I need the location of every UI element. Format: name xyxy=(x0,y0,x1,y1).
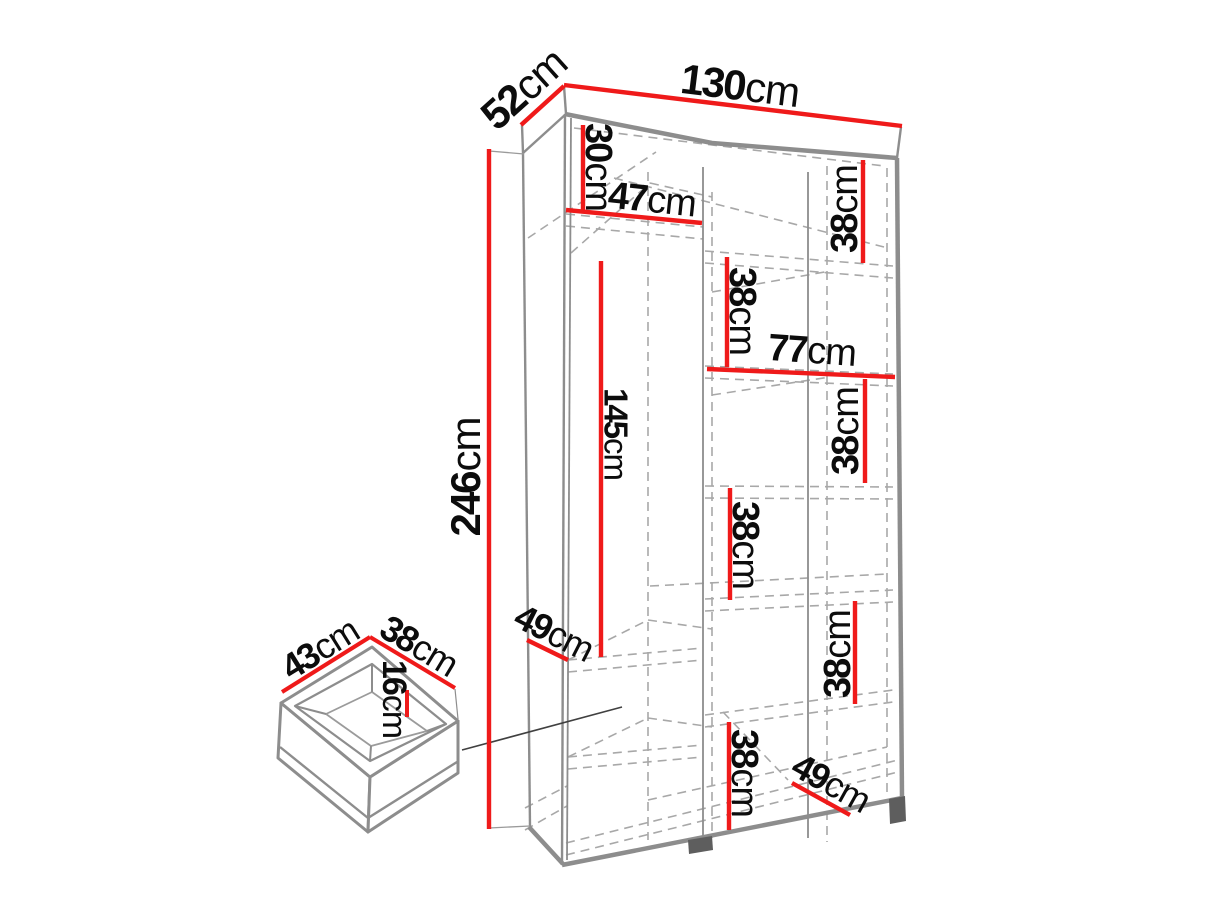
dim-label-drawer-height-16cm: 16cm xyxy=(377,660,411,738)
dim-label-mid-gap2-38cm: 38cm xyxy=(726,501,764,589)
wardrobe-dimension-diagram: 52cm 130cm 246cm 30cm 47cm 38cm 38cm 77c… xyxy=(0,0,1214,911)
dim-label-left-column-47cm: 47cm xyxy=(606,177,697,224)
drawer-pointer-line xyxy=(462,707,622,750)
dim-label-height-246cm: 246cm xyxy=(445,417,487,536)
dim-label-right-gap2-38cm: 38cm xyxy=(827,387,865,475)
dim-label-hanging-145cm: 145cm xyxy=(600,388,633,480)
dim-label-mid-gap1-38cm: 38cm xyxy=(723,267,761,355)
dim-label-right-gap1-38cm: 38cm xyxy=(826,165,864,253)
dim-label-right-gap3-38cm: 38cm xyxy=(819,610,857,698)
dim-label-mid-gap3-38cm: 38cm xyxy=(725,729,763,817)
dim-label-right-section-77cm: 77cm xyxy=(767,329,857,373)
